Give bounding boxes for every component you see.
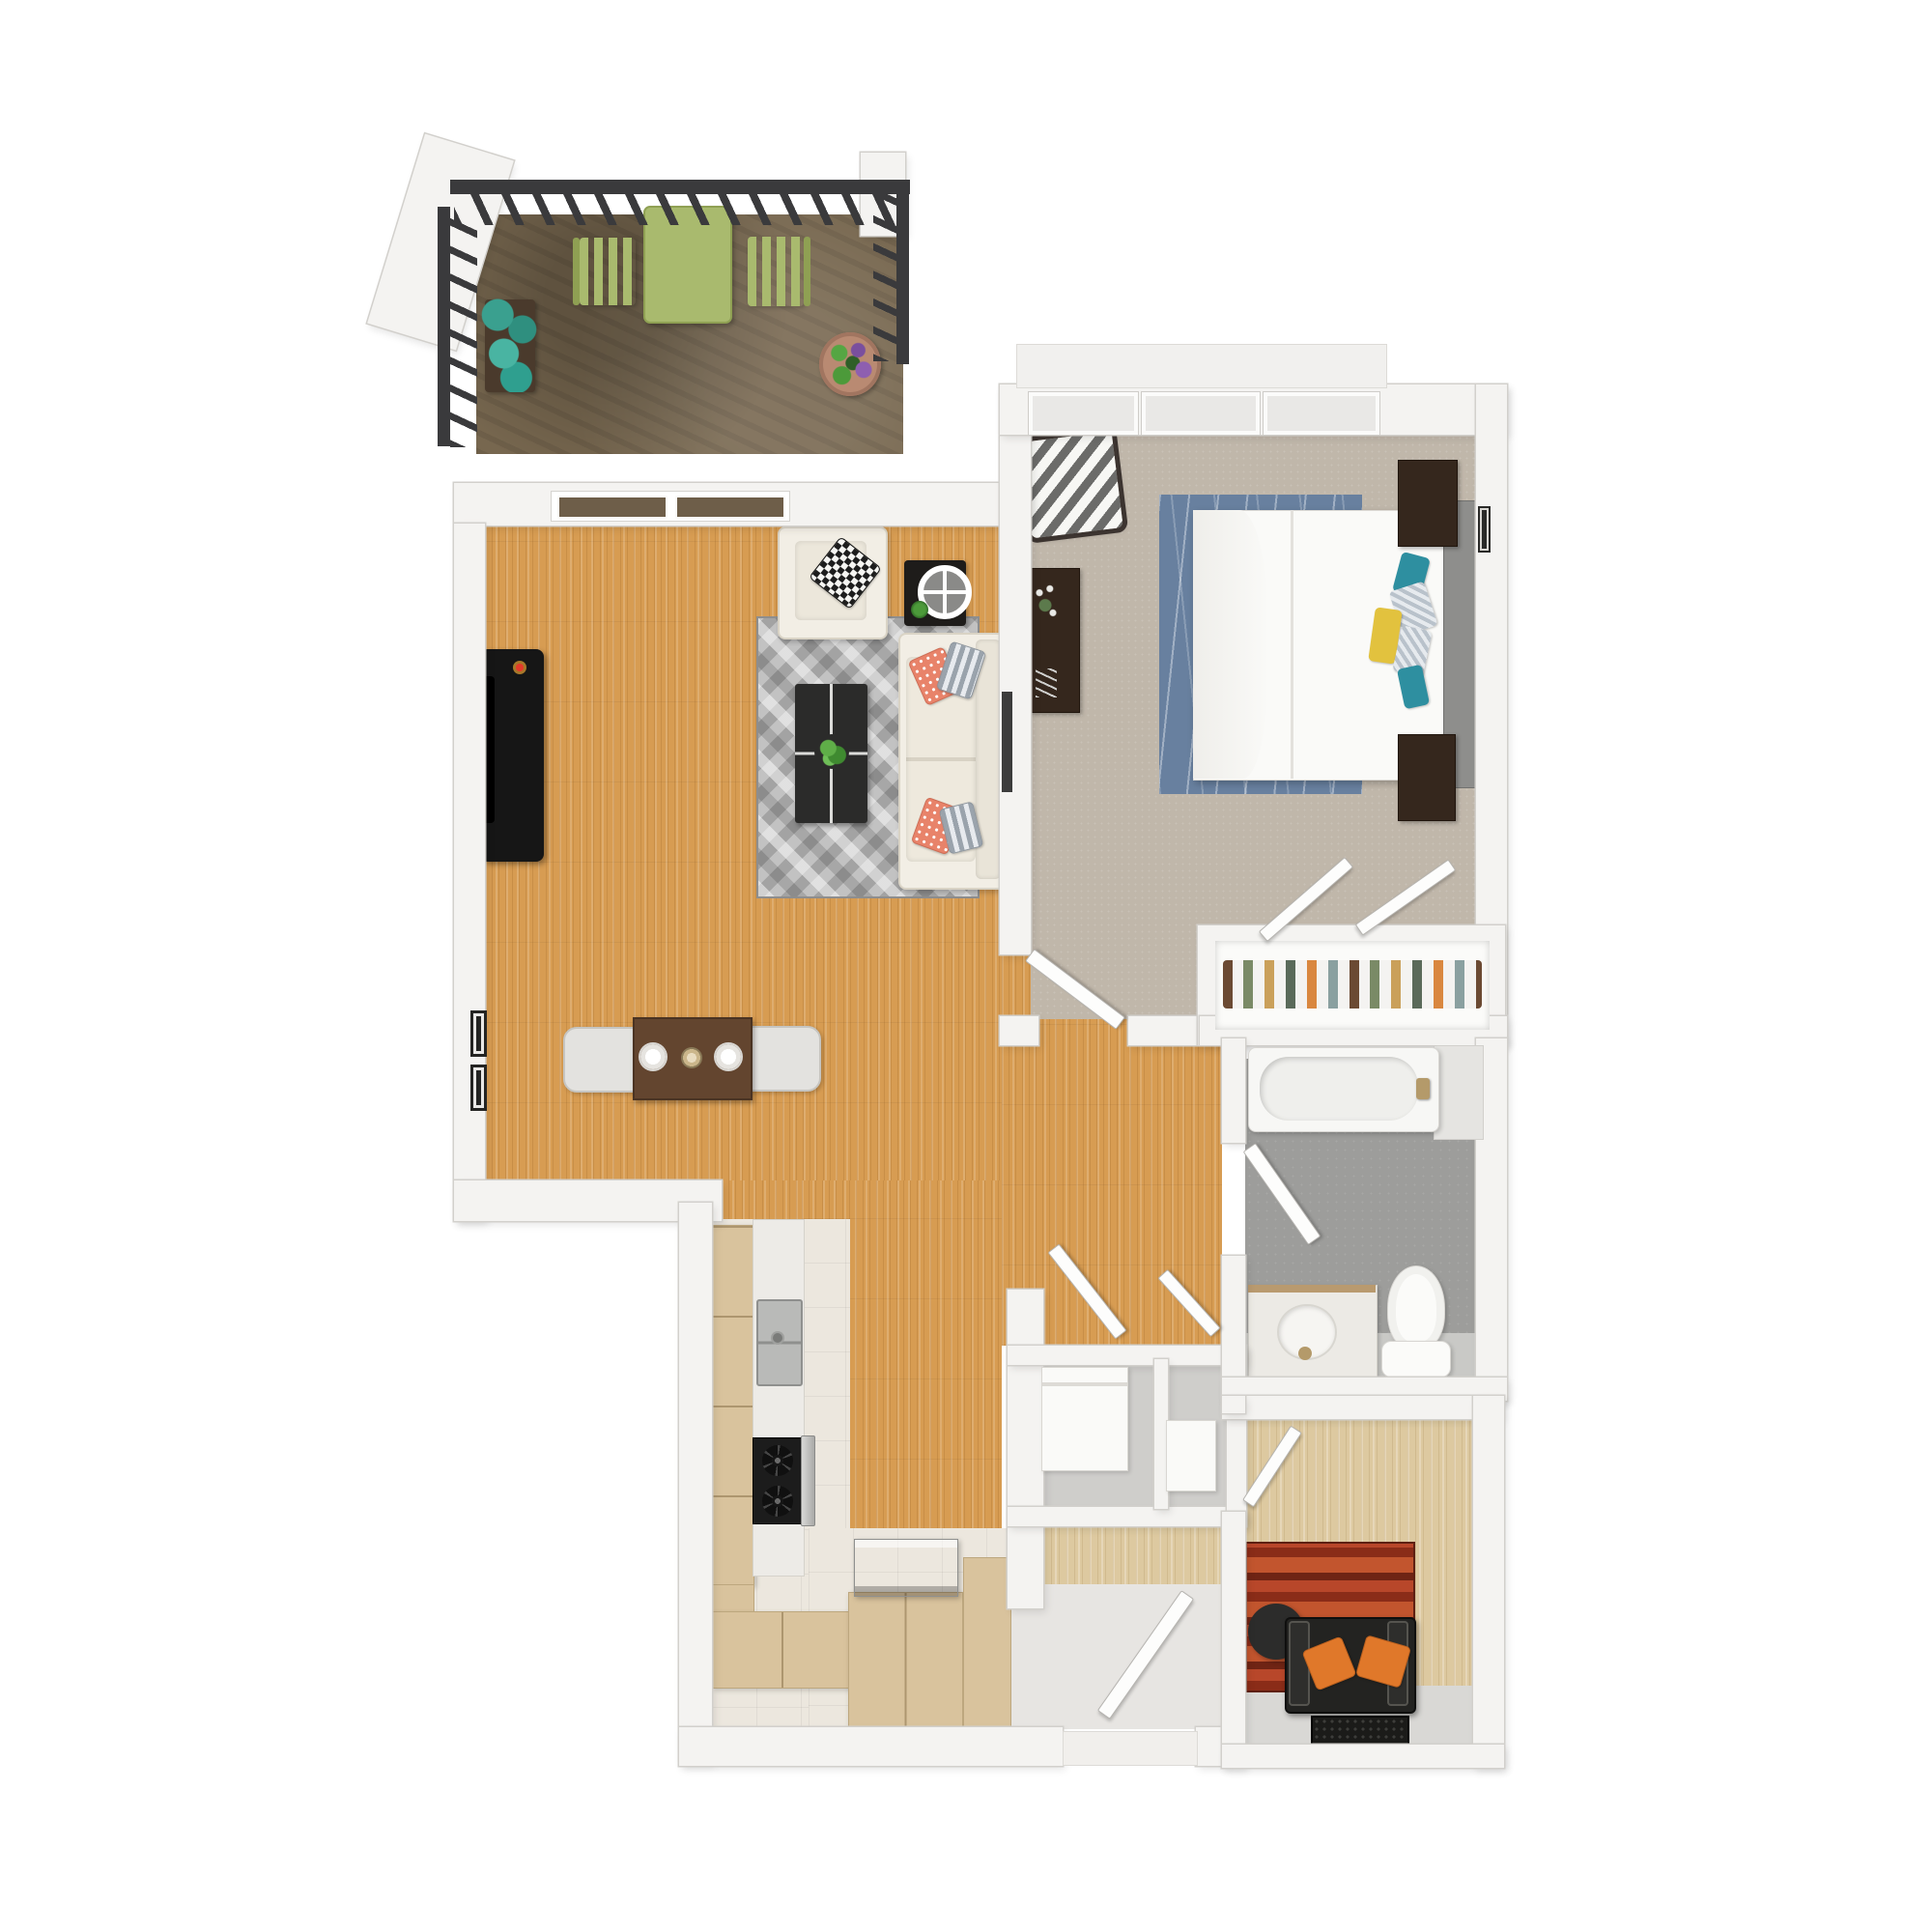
tv-logo-icon	[513, 661, 526, 674]
upper-cabinets	[712, 1225, 754, 1586]
balcony-chair-left-back	[573, 238, 580, 305]
bedroom-window-sill-band	[1016, 344, 1387, 388]
utility-left-wall-stub	[1008, 1290, 1043, 1608]
den-left-wall	[1222, 1512, 1245, 1768]
tub-faucet-icon	[1416, 1078, 1430, 1099]
bathtub-basin	[1260, 1057, 1418, 1121]
chevron-accent-chair	[1020, 432, 1122, 539]
balcony-railing-top-slats	[454, 194, 908, 225]
desk-accessory	[1036, 668, 1057, 697]
dining-chair-right	[744, 1026, 821, 1092]
balcony-railing-left-slats	[450, 217, 477, 447]
vanity-counter-edge	[1248, 1285, 1376, 1293]
sink-faucet-icon	[773, 1333, 782, 1343]
bedroom-bottom-wall-mid	[1128, 1016, 1200, 1045]
bedroom-bottom-wall-left	[1000, 1016, 1038, 1045]
den-top-wall	[1222, 1396, 1502, 1419]
dining-chair-left	[563, 1027, 639, 1093]
kitchen-left-wall	[679, 1203, 712, 1763]
side-table-plant	[911, 601, 928, 618]
table-centerpiece	[681, 1047, 702, 1068]
range-burner-top	[762, 1445, 793, 1476]
planter-plants	[479, 296, 541, 392]
bottom-wall-left	[679, 1727, 1063, 1766]
balcony-railing-left	[438, 207, 450, 446]
balcony-railing-top	[450, 180, 910, 194]
side-counter	[963, 1557, 1011, 1743]
balcony-railing-right-slats	[873, 191, 896, 361]
place-setting-left	[640, 1044, 666, 1069]
tub-surround	[1434, 1045, 1484, 1140]
toilet-tank	[1381, 1341, 1451, 1378]
nightstand-top	[1398, 460, 1458, 547]
closet-clothes	[1223, 960, 1482, 1009]
wall-console-strip	[1002, 692, 1012, 792]
balcony-chair-right-back	[804, 237, 810, 306]
kitchen-sink	[756, 1299, 803, 1386]
sliding-door-glass-left	[557, 496, 668, 519]
storage-cabinet	[1166, 1420, 1216, 1492]
bed-sheet-fold	[1193, 510, 1270, 779]
washer	[1041, 1367, 1128, 1471]
balcony-railing-right	[896, 188, 909, 364]
floorplan-canvas	[0, 0, 1932, 1932]
entry-threshold	[1063, 1731, 1198, 1766]
window-3	[1264, 392, 1379, 435]
toilet-bowl	[1387, 1265, 1445, 1350]
doormat	[1311, 1716, 1409, 1748]
utility-outer-walls	[1008, 1346, 1246, 1365]
living-left-wall	[454, 524, 485, 1221]
bottom-wall-right	[1196, 1727, 1225, 1766]
living-bedroom-wall	[1000, 384, 1031, 954]
bedroom-wall-art	[1478, 506, 1491, 553]
vanity-faucet-icon	[1298, 1347, 1312, 1360]
oven-door	[801, 1435, 815, 1526]
window-1	[1029, 392, 1138, 435]
place-setting-right	[716, 1044, 741, 1069]
window-2	[1142, 392, 1260, 435]
bed-blanket-seam	[1291, 510, 1293, 779]
nightstand-bottom	[1398, 734, 1456, 821]
picture-frame-lower	[470, 1065, 487, 1111]
balcony-chair-left	[580, 238, 636, 305]
bathroom-left-wall-upper	[1222, 1038, 1245, 1143]
den-right-wall	[1473, 1396, 1504, 1768]
den-left-wall-stub	[1222, 1396, 1245, 1413]
island-appliance	[854, 1539, 958, 1597]
potted-plant-flowers	[823, 336, 877, 392]
utility-bottom-wall	[1008, 1507, 1246, 1526]
den-bottom-wall	[1222, 1745, 1504, 1768]
picture-frame-upper	[470, 1010, 487, 1057]
base-cabinets-bottom	[712, 1611, 855, 1689]
coffee-table-plant	[814, 734, 849, 769]
sliding-door-glass-right	[675, 496, 785, 519]
range-burner-bottom	[762, 1486, 793, 1517]
balcony-chair-right	[748, 237, 804, 306]
desk-plant-sprig	[1026, 578, 1065, 628]
